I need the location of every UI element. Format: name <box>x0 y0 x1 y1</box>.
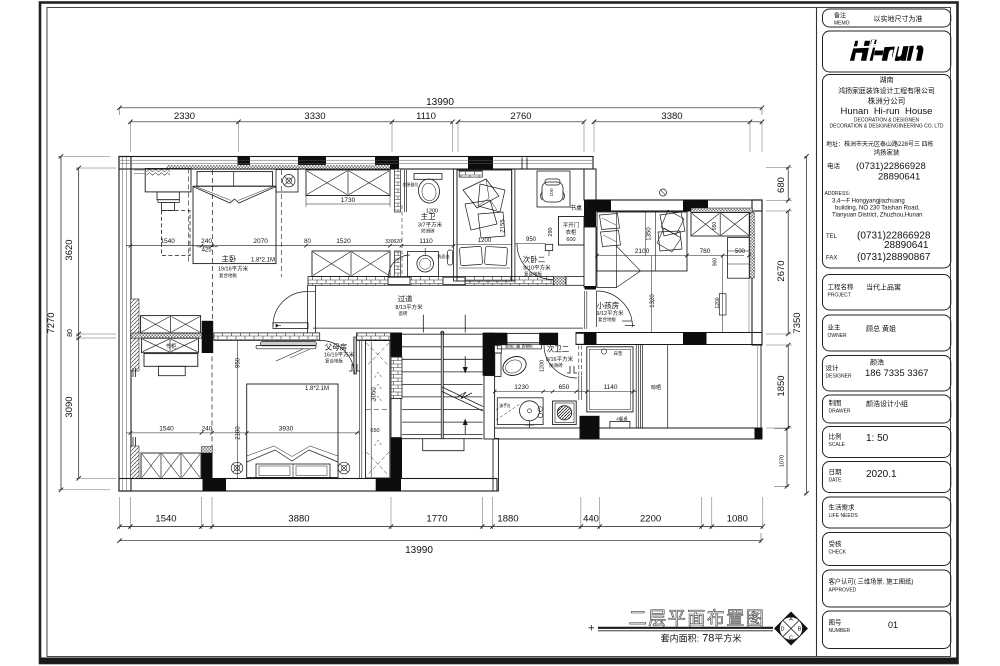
svg-text:MEMO: MEMO <box>834 21 850 27</box>
svg-text:7270: 7270 <box>46 312 57 333</box>
svg-text:比例: 比例 <box>829 432 842 441</box>
svg-text:1540: 1540 <box>160 238 175 245</box>
svg-text:01: 01 <box>888 620 898 630</box>
svg-text:3930: 3930 <box>279 425 294 432</box>
svg-text:复合地板: 复合地板 <box>219 272 237 279</box>
svg-text:3050: 3050 <box>372 387 378 401</box>
svg-text:生活需求: 生活需求 <box>829 503 856 512</box>
svg-text:680: 680 <box>776 177 787 193</box>
svg-text:16/19平方米: 16/19平方米 <box>324 351 355 359</box>
svg-text:1110: 1110 <box>416 111 436 122</box>
svg-text:复合地板: 复合地板 <box>598 316 616 323</box>
svg-text:425: 425 <box>202 248 213 254</box>
svg-text:Tianyuan District, Zhuzhou,Hun: Tianyuan District, Zhuzhou,Hunan <box>832 213 923 219</box>
svg-text:ADDRESS:: ADDRESS: <box>825 191 851 197</box>
svg-text:100: 100 <box>549 188 555 196</box>
svg-text:950: 950 <box>236 357 242 368</box>
svg-text:C: C <box>789 636 793 642</box>
svg-text:书桌: 书桌 <box>570 204 582 212</box>
svg-text:1200: 1200 <box>715 297 721 308</box>
svg-text:备注: 备注 <box>834 12 846 20</box>
svg-text:8/10平方米: 8/10平方米 <box>523 264 551 272</box>
svg-text:290: 290 <box>548 227 554 236</box>
svg-text:2670: 2670 <box>776 260 787 281</box>
svg-text:书柜: 书柜 <box>165 342 177 350</box>
svg-text:坐便器位: 坐便器位 <box>403 181 419 187</box>
svg-text:A: A <box>789 617 793 623</box>
svg-text:8/16平方米: 8/16平方米 <box>546 355 574 363</box>
svg-text:28890641: 28890641 <box>878 172 920 183</box>
svg-text:湖南: 湖南 <box>880 75 894 84</box>
svg-text:床垫: 床垫 <box>614 350 623 357</box>
svg-text:3620: 3620 <box>64 239 75 260</box>
svg-text:以实地尺寸为准: 以实地尺寸为准 <box>874 14 923 23</box>
svg-text:Hunan Hi-run House: Hunan Hi-run House <box>841 106 933 117</box>
svg-text:1200: 1200 <box>478 238 492 244</box>
svg-text:1080: 1080 <box>727 514 748 525</box>
svg-text:次卫二: 次卫二 <box>547 344 570 354</box>
svg-text:1730: 1730 <box>341 197 356 204</box>
svg-text:1320: 1320 <box>650 294 656 308</box>
svg-text:客户认可( 三维场景, 施工图纸): 客户认可( 三维场景, 施工图纸) <box>829 577 914 586</box>
svg-text:550: 550 <box>712 222 718 231</box>
svg-text:瓷砖: 瓷砖 <box>399 310 408 317</box>
svg-text:OWNER: OWNER <box>828 333 848 339</box>
svg-text:1110: 1110 <box>419 238 433 245</box>
svg-text:地址：株洲市天元区泰山路228号三 四栋: 地址：株洲市天元区泰山路228号三 四栋 <box>826 140 934 148</box>
svg-text:1880: 1880 <box>497 514 518 525</box>
svg-text:3380: 3380 <box>661 111 682 122</box>
svg-text:3880: 3880 <box>288 514 309 525</box>
svg-text:2155: 2155 <box>501 219 507 233</box>
svg-text:80: 80 <box>67 329 74 337</box>
svg-text:600: 600 <box>566 237 575 243</box>
svg-text:1070: 1070 <box>780 455 786 467</box>
svg-text:780: 780 <box>700 248 711 255</box>
svg-text:颜浩设计小组: 颜浩设计小组 <box>866 399 908 408</box>
svg-text:2020.1: 2020.1 <box>866 469 897 480</box>
svg-text:顾总 黄姐: 顾总 黄姐 <box>866 324 896 333</box>
svg-text:次卧二: 次卧二 <box>523 254 546 264</box>
svg-text:2200: 2200 <box>640 514 661 525</box>
svg-text:9/12平方米: 9/12平方米 <box>596 309 624 317</box>
svg-text:复合地板: 复合地板 <box>325 358 343 365</box>
svg-text:防滑砖: 防滑砖 <box>421 228 435 235</box>
svg-text:玻璃门盒 置物柜: 玻璃门盒 置物柜 <box>505 344 533 349</box>
svg-text:复合地板: 复合地板 <box>524 271 542 278</box>
svg-text:衣柜: 衣柜 <box>565 228 577 236</box>
svg-text:主卫: 主卫 <box>421 211 436 221</box>
svg-text:650: 650 <box>559 384 570 391</box>
svg-text:株洲分公司: 株洲分公司 <box>868 96 906 106</box>
svg-text:500: 500 <box>735 249 746 255</box>
svg-text:950: 950 <box>526 237 537 243</box>
svg-text:TEL: TEL <box>826 234 838 240</box>
svg-text:8/13平方米: 8/13平方米 <box>395 303 423 311</box>
svg-text:1: 50: 1: 50 <box>866 433 889 444</box>
svg-text:1520: 1520 <box>336 238 351 245</box>
svg-text:颜浩: 颜浩 <box>870 358 884 367</box>
svg-text:防滑砖: 防滑砖 <box>549 362 563 369</box>
svg-text:APPROVED: APPROVED <box>829 588 857 594</box>
svg-text:1770: 1770 <box>426 514 447 525</box>
svg-text:2330: 2330 <box>174 111 195 122</box>
svg-text:3090: 3090 <box>64 396 75 417</box>
svg-text:主卧: 主卧 <box>222 254 237 264</box>
svg-text:1200: 1200 <box>540 360 546 372</box>
svg-text:1140: 1140 <box>604 384 618 391</box>
svg-text:受核: 受核 <box>829 539 843 548</box>
svg-text:日期: 日期 <box>829 468 843 476</box>
svg-text:1540: 1540 <box>155 514 176 525</box>
svg-text:PROJECT: PROJECT <box>828 293 851 299</box>
svg-text:D: D <box>781 627 785 633</box>
svg-text:(0731)22866928: (0731)22866928 <box>856 161 926 172</box>
svg-text:业主: 业主 <box>828 323 842 332</box>
svg-text:4餐桌: 4餐桌 <box>616 416 628 423</box>
svg-text:1230: 1230 <box>514 384 529 391</box>
svg-text:NUMBER: NUMBER <box>829 628 851 634</box>
svg-text:900: 900 <box>713 258 719 267</box>
svg-text:2070: 2070 <box>253 238 268 245</box>
svg-text:二层平面布置图: 二层平面布置图 <box>629 609 766 629</box>
svg-text:13990: 13990 <box>426 97 454 108</box>
svg-text:套内面积: 78平方米: 套内面积: 78平方米 <box>661 633 742 645</box>
svg-text:1.8*2.1M: 1.8*2.1M <box>305 386 329 392</box>
svg-text:当代上品寓: 当代上品寓 <box>866 283 901 292</box>
svg-text:186 7335 3367: 186 7335 3367 <box>865 368 928 379</box>
svg-text:DECORATION & DESIGNENGINEERING: DECORATION & DESIGNENGINEERING CO. LTD <box>830 124 944 130</box>
svg-text:晾晒: 晾晒 <box>651 384 661 391</box>
svg-text:1350: 1350 <box>647 227 653 241</box>
svg-text:3330: 3330 <box>304 111 325 122</box>
svg-text:工程名称: 工程名称 <box>828 282 855 291</box>
svg-text:父母房: 父母房 <box>325 342 348 352</box>
svg-text:1540: 1540 <box>159 425 174 432</box>
svg-text:DATE: DATE <box>829 478 843 484</box>
svg-text:7350: 7350 <box>792 312 803 333</box>
svg-text:CHECK: CHECK <box>829 550 847 556</box>
svg-text:440: 440 <box>583 514 599 525</box>
svg-text:13990: 13990 <box>405 545 433 556</box>
svg-text:330620: 330620 <box>385 239 402 245</box>
svg-text:LIFE NEEDS: LIFE NEEDS <box>829 513 859 519</box>
svg-text:2760: 2760 <box>510 111 531 122</box>
svg-text:DRAWER: DRAWER <box>829 409 851 415</box>
svg-text:SCALE: SCALE <box>829 442 846 448</box>
svg-text:B: B <box>798 627 802 633</box>
svg-text:28890641: 28890641 <box>884 240 929 251</box>
svg-text:1.8*2.1M: 1.8*2.1M <box>251 258 275 264</box>
svg-text:电话: 电话 <box>827 161 841 170</box>
svg-text:3/7平方米: 3/7平方米 <box>418 221 443 229</box>
svg-text:2100: 2100 <box>236 426 242 440</box>
svg-text:平开门: 平开门 <box>563 221 580 229</box>
svg-text:设计: 设计 <box>826 363 840 372</box>
svg-text:过道: 过道 <box>398 294 413 304</box>
svg-text:小孩房: 小孩房 <box>597 300 620 310</box>
svg-text:650: 650 <box>370 428 379 434</box>
svg-text:1850: 1850 <box>776 375 787 396</box>
svg-text:FAX: FAX <box>826 256 837 262</box>
svg-text:制图: 制图 <box>829 398 842 407</box>
svg-text:鸿扬家庭装饰设计工程有限公司: 鸿扬家庭装饰设计工程有限公司 <box>838 86 935 95</box>
svg-text:3,4—F Hongyangjiazhuang: 3,4—F Hongyangjiazhuang <box>832 199 905 205</box>
svg-text:(0731)28890867: (0731)28890867 <box>857 252 931 263</box>
svg-text:鸿扬家装: 鸿扬家装 <box>874 148 901 157</box>
svg-text:19/16平方米: 19/16平方米 <box>218 265 249 273</box>
svg-text:DESIGNER: DESIGNER <box>826 374 853 380</box>
svg-text:洗面台: 洗面台 <box>437 253 450 260</box>
svg-text:图号: 图号 <box>829 619 843 627</box>
svg-text:building, NO 230 Taishan Road,: building, NO 230 Taishan Road, <box>835 206 920 212</box>
svg-text:2100: 2100 <box>635 248 650 255</box>
